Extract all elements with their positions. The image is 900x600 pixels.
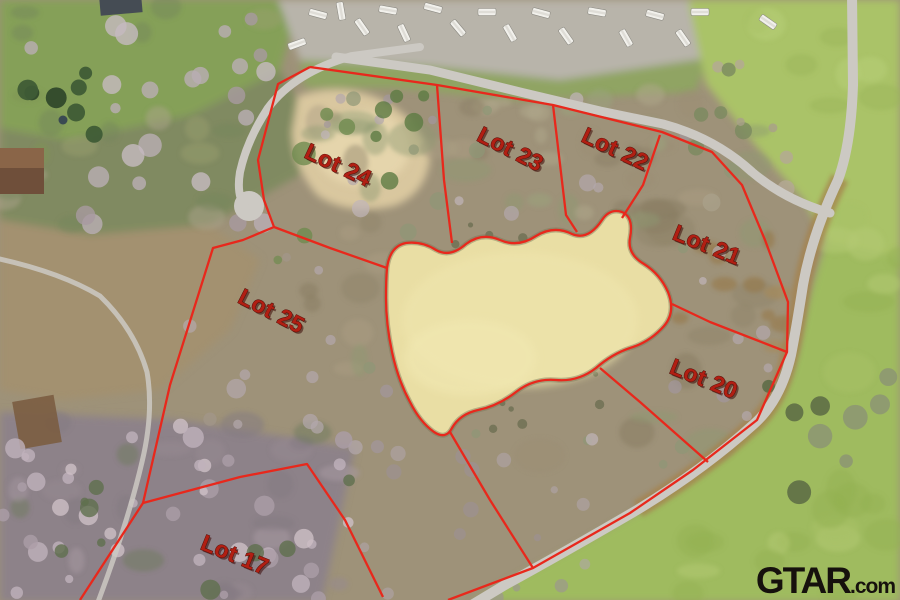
tree	[736, 118, 744, 126]
tree	[497, 453, 512, 468]
tree	[325, 335, 335, 345]
tree	[46, 87, 67, 108]
tree	[256, 62, 275, 81]
tree	[194, 460, 205, 471]
tree	[675, 439, 690, 454]
tree	[504, 206, 519, 221]
tree	[292, 575, 310, 593]
tree	[294, 529, 314, 549]
terrain-blotch	[764, 285, 792, 299]
tree	[132, 176, 146, 190]
tree	[555, 579, 568, 592]
tree	[324, 121, 331, 128]
tree	[306, 371, 318, 383]
terrain-blotch	[252, 516, 295, 531]
terrain-blotch	[212, 123, 245, 138]
tree	[238, 110, 254, 126]
tree	[89, 480, 104, 495]
tree	[97, 538, 105, 546]
terrain-blotch	[117, 443, 139, 465]
tree	[17, 482, 26, 491]
tree	[274, 256, 283, 265]
tree	[80, 499, 99, 518]
tree	[314, 266, 323, 275]
tree	[233, 420, 242, 429]
tree	[227, 379, 247, 399]
tree	[375, 101, 392, 118]
terrain-blotch	[676, 524, 714, 557]
tree	[183, 427, 204, 448]
tree	[55, 544, 69, 558]
tree	[76, 206, 95, 225]
rv-trailer	[478, 9, 496, 16]
tree	[166, 507, 180, 521]
tree	[870, 394, 890, 414]
terrain-blotch	[688, 327, 731, 346]
tree	[430, 192, 448, 210]
tree	[27, 472, 46, 491]
tree	[735, 60, 745, 70]
tree	[780, 151, 793, 164]
tree	[455, 196, 464, 205]
tree	[580, 559, 591, 570]
tree	[335, 431, 352, 448]
aerial-lot-map-photo: Lot 24Lot 24Lot 23Lot 23Lot 22Lot 22Lot …	[0, 0, 900, 600]
tree	[334, 458, 346, 470]
terrain-blotch	[146, 106, 172, 130]
watermark-tld: .com	[850, 576, 895, 597]
terrain-blotch	[12, 25, 34, 41]
tree	[659, 460, 668, 469]
terrain-blotch	[301, 126, 335, 142]
tree	[551, 486, 558, 493]
house-brown-roof	[0, 148, 44, 168]
tree	[219, 25, 232, 38]
tree	[102, 75, 121, 94]
tree	[303, 414, 318, 429]
terrain-blotch	[100, 121, 119, 142]
tree	[879, 368, 897, 386]
tree	[71, 79, 87, 95]
terrain-blotch	[677, 564, 720, 579]
tree	[222, 455, 234, 467]
tree	[65, 575, 73, 583]
trampoline	[59, 116, 68, 125]
tree	[787, 480, 811, 504]
shore-brush	[489, 425, 497, 433]
tree	[482, 106, 492, 116]
tree	[577, 498, 590, 511]
terrain-blotch	[867, 274, 900, 294]
shore-brush	[468, 222, 473, 227]
gtar-watermark: GTAR.com	[756, 562, 895, 599]
terrain-blotch	[630, 411, 678, 423]
tree	[5, 438, 25, 458]
tree	[339, 119, 355, 135]
terrain-blotch	[268, 471, 294, 499]
terrain-blotch	[185, 116, 209, 141]
tree	[321, 130, 330, 139]
tree	[703, 194, 721, 212]
tree	[240, 369, 251, 380]
tree	[714, 106, 727, 119]
tree	[254, 48, 268, 62]
tree	[418, 90, 429, 101]
tree	[184, 70, 201, 87]
tree	[52, 499, 69, 516]
tree	[409, 144, 419, 154]
tree	[320, 108, 333, 121]
tree	[742, 411, 752, 421]
tree	[282, 253, 291, 262]
tree	[463, 502, 479, 518]
terrain-blotch	[520, 104, 544, 119]
tree	[191, 172, 210, 191]
terrain-blotch	[68, 548, 84, 574]
tree	[126, 431, 138, 443]
tree	[808, 424, 832, 448]
tree	[352, 200, 370, 218]
tree	[382, 588, 394, 600]
shore-brush	[517, 419, 527, 429]
terrain-blotch	[743, 277, 765, 293]
tree	[11, 586, 23, 598]
terrain-blotch	[836, 204, 867, 231]
tree	[23, 535, 38, 550]
terrain-blotch	[810, 97, 852, 113]
tree	[386, 464, 401, 479]
terrain-blotch	[514, 438, 565, 473]
shore-brush	[595, 400, 604, 409]
tree	[370, 131, 381, 142]
terrain-blotch	[41, 480, 81, 501]
tree	[454, 528, 466, 540]
tree	[371, 440, 384, 453]
tree	[785, 403, 803, 421]
tree	[122, 144, 145, 167]
terrain-blotch	[847, 227, 885, 260]
tree	[390, 446, 405, 461]
tree	[428, 116, 437, 125]
tree	[105, 15, 127, 37]
terrain-blotch	[527, 193, 552, 207]
terrain-blotch	[823, 352, 875, 392]
tree	[104, 528, 116, 540]
tree	[699, 277, 707, 285]
terrain-blotch	[341, 273, 379, 303]
tree	[245, 13, 258, 26]
tree	[17, 80, 38, 101]
terrain-blotch	[712, 277, 738, 291]
tree	[228, 87, 246, 105]
terrain-blotch	[459, 98, 485, 116]
tree	[203, 412, 216, 425]
terrain-blotch	[535, 127, 547, 144]
terrain-blotch	[39, 109, 63, 136]
tree	[79, 67, 92, 80]
tree	[254, 496, 274, 516]
terrain-blotch	[833, 482, 871, 517]
terrain-blotch	[304, 295, 321, 312]
tree	[86, 126, 103, 143]
terrain-blotch	[181, 143, 220, 165]
tree	[839, 454, 852, 467]
tree	[405, 113, 424, 132]
tree	[346, 91, 361, 106]
terrain-blotch	[843, 291, 895, 312]
tree	[843, 405, 868, 430]
tree	[200, 580, 220, 600]
terrain-blotch	[196, 193, 232, 212]
rv-trailer	[691, 9, 709, 16]
tree	[810, 396, 830, 416]
terrain-blotch	[785, 54, 817, 76]
tree	[142, 81, 159, 98]
tree	[336, 94, 346, 104]
tree	[363, 362, 375, 374]
terrain-blotch	[340, 226, 360, 241]
pond-highlight-2	[404, 320, 536, 396]
tree	[534, 534, 541, 541]
tree	[380, 385, 393, 398]
tree	[756, 325, 770, 339]
tree	[400, 224, 417, 241]
terrain-blotch	[342, 319, 374, 347]
tree	[279, 541, 295, 557]
tree	[722, 63, 736, 77]
tree	[764, 363, 773, 372]
tree	[110, 103, 120, 113]
terrain-blotch	[575, 205, 594, 220]
tree	[593, 183, 603, 193]
tree	[232, 58, 248, 74]
terrain-blotch	[636, 84, 665, 106]
terrain-blotch	[440, 158, 491, 181]
terrain-blotch	[672, 312, 689, 324]
shore-brush	[508, 406, 513, 411]
aerial-photo-canvas: Lot 24Lot 24Lot 23Lot 23Lot 22Lot 22Lot …	[0, 0, 900, 600]
tree	[24, 41, 38, 55]
tree	[343, 474, 355, 486]
terrain-blotch	[329, 578, 348, 591]
tree	[768, 123, 777, 132]
terrain-blotch	[11, 6, 40, 19]
tree	[220, 591, 228, 599]
tree	[67, 104, 85, 122]
tree	[65, 464, 76, 475]
watermark-brand: GTAR	[756, 562, 850, 599]
tree	[304, 563, 319, 578]
tree	[381, 172, 399, 190]
tree	[88, 166, 109, 187]
tree	[471, 429, 480, 438]
tree	[390, 90, 403, 103]
terrain-blotch	[123, 549, 164, 571]
tree	[586, 433, 598, 445]
tree	[694, 107, 708, 121]
